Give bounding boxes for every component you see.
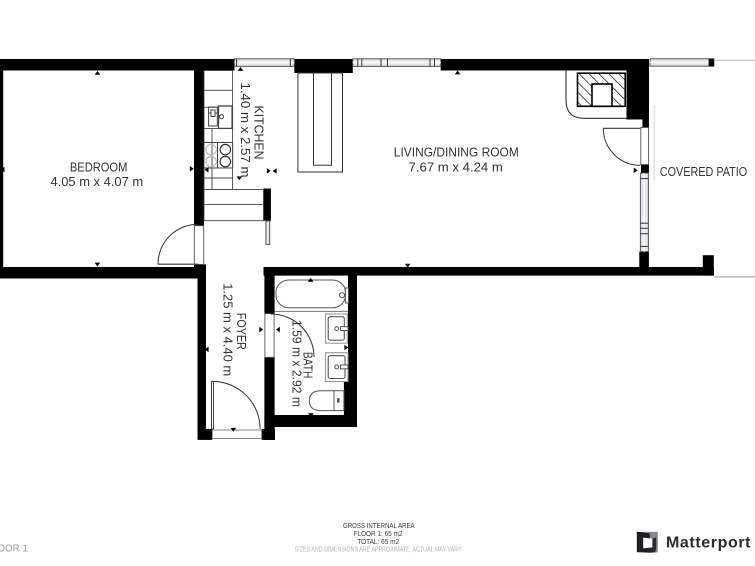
svg-text:FLOOR 1: FLOOR 1: [0, 544, 28, 555]
svg-text:BEDROOM: BEDROOM: [70, 160, 128, 175]
svg-text:LIVING/DINING ROOM: LIVING/DINING ROOM: [394, 145, 519, 160]
svg-text:Matterport: Matterport: [666, 534, 751, 551]
svg-text:1.40 m x 2.57 m: 1.40 m x 2.57 m: [238, 83, 253, 178]
svg-text:7.67 m x 4.24 m: 7.67 m x 4.24 m: [409, 160, 503, 175]
svg-text:COVERED PATIO: COVERED PATIO: [660, 164, 747, 179]
svg-text:1.25 m x 4.40 m: 1.25 m x 4.40 m: [221, 283, 236, 376]
svg-text:SIZES AND DIMENSIONS ARE APPRO: SIZES AND DIMENSIONS ARE APPROXIMATE, AC…: [295, 545, 463, 554]
svg-text:4.05 m x 4.07 m: 4.05 m x 4.07 m: [50, 174, 143, 189]
svg-text:1.59 m x 2.92 m: 1.59 m x 2.92 m: [290, 320, 305, 407]
